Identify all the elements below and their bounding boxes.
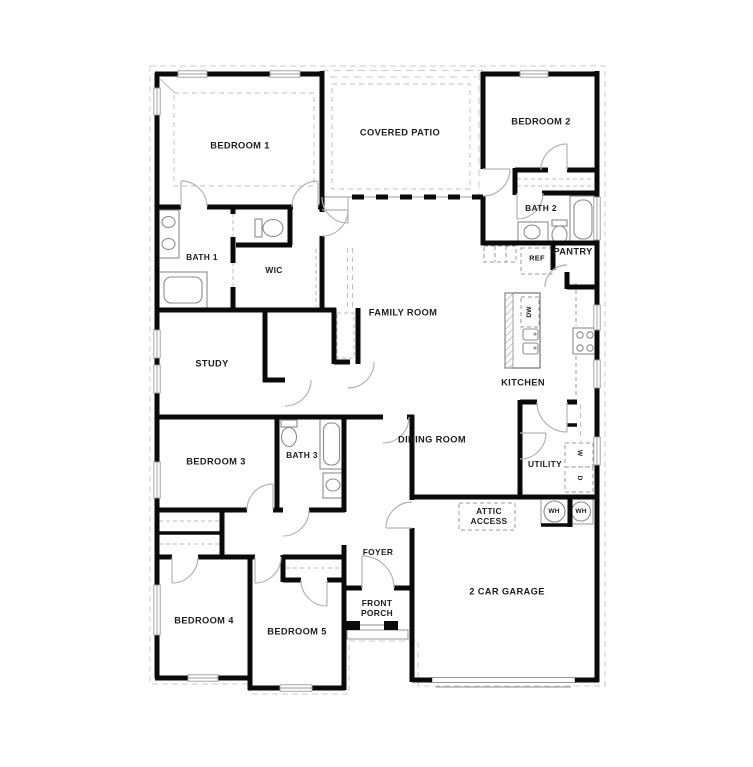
burner [577, 332, 583, 338]
room-label-bedroom-4: BEDROOM 4 [174, 616, 233, 627]
room-label-front-porch: FRONT PORCH [361, 599, 393, 619]
burner [587, 332, 593, 338]
room-label-garage: 2 CAR GARAGE [469, 587, 544, 598]
window [178, 71, 207, 77]
appliance-label-washer: W [575, 450, 583, 456]
room-label-pantry: PANTRY [553, 247, 592, 258]
room-label-bath-1: BATH 1 [186, 253, 218, 263]
room-label-bedroom-2: BEDROOM 2 [511, 117, 570, 128]
window [594, 360, 600, 388]
appliance-label-wh-1: WH [548, 508, 559, 516]
window [188, 675, 218, 681]
window [154, 462, 160, 498]
window [594, 197, 600, 240]
bath3-toilet-tank [281, 420, 297, 427]
room-label-bath-3: BATH 3 [286, 451, 318, 461]
room-label-bedroom-3: BEDROOM 3 [186, 457, 245, 468]
bath1-toilet-tank [255, 219, 262, 237]
room-label-bedroom-1: BEDROOM 1 [210, 141, 269, 152]
room-label-utility: UTILITY [528, 460, 562, 470]
window [154, 88, 160, 115]
appliance-label-ref: REF [529, 255, 545, 264]
room-label-wic: WIC [265, 266, 282, 276]
room-label-bedroom-5: BEDROOM 5 [267, 627, 326, 638]
room-label-foyer: FOYER [363, 548, 394, 558]
label-attic-access: ATTIC ACCESS [470, 507, 507, 527]
bath2-toilet-tank [552, 220, 567, 226]
window [520, 71, 548, 77]
bath3-sink [326, 479, 340, 491]
room-label-covered-patio: COVERED PATIO [360, 128, 440, 139]
window [594, 305, 600, 330]
window [280, 685, 312, 691]
appliance-label-wh-2: WH [575, 508, 586, 516]
kitchen-counter [484, 246, 516, 262]
bath1-sink-2 [162, 239, 175, 250]
garage-door [432, 678, 575, 683]
room-label-study: STUDY [195, 359, 228, 370]
room-label-dining-room: DINING ROOM [398, 435, 466, 446]
window [154, 365, 160, 393]
kitchen-bar-hatch [505, 293, 513, 368]
bath1-toilet [263, 220, 283, 237]
floor-plan-drawing [0, 0, 753, 767]
appliance-label-dryer: D [575, 476, 583, 481]
porch-posts [345, 621, 398, 630]
bath2-sink [524, 225, 540, 239]
room-label-family-room: FAMILY ROOM [369, 308, 437, 319]
porch-steps [347, 630, 408, 639]
window [594, 437, 600, 465]
window [154, 330, 160, 358]
burner [577, 345, 583, 351]
floor-plan: BEDROOM 1 COVERED PATIO BEDROOM 2 BATH 1… [0, 0, 753, 767]
bath1-sink-1 [162, 217, 175, 228]
appliance-label-dw: DW [526, 306, 534, 317]
bath3-toilet [282, 428, 297, 447]
room-label-kitchen: KITCHEN [501, 378, 545, 389]
room-label-bath-2: BATH 2 [525, 204, 557, 214]
window [154, 585, 160, 635]
burner [587, 345, 593, 351]
window [270, 71, 300, 77]
